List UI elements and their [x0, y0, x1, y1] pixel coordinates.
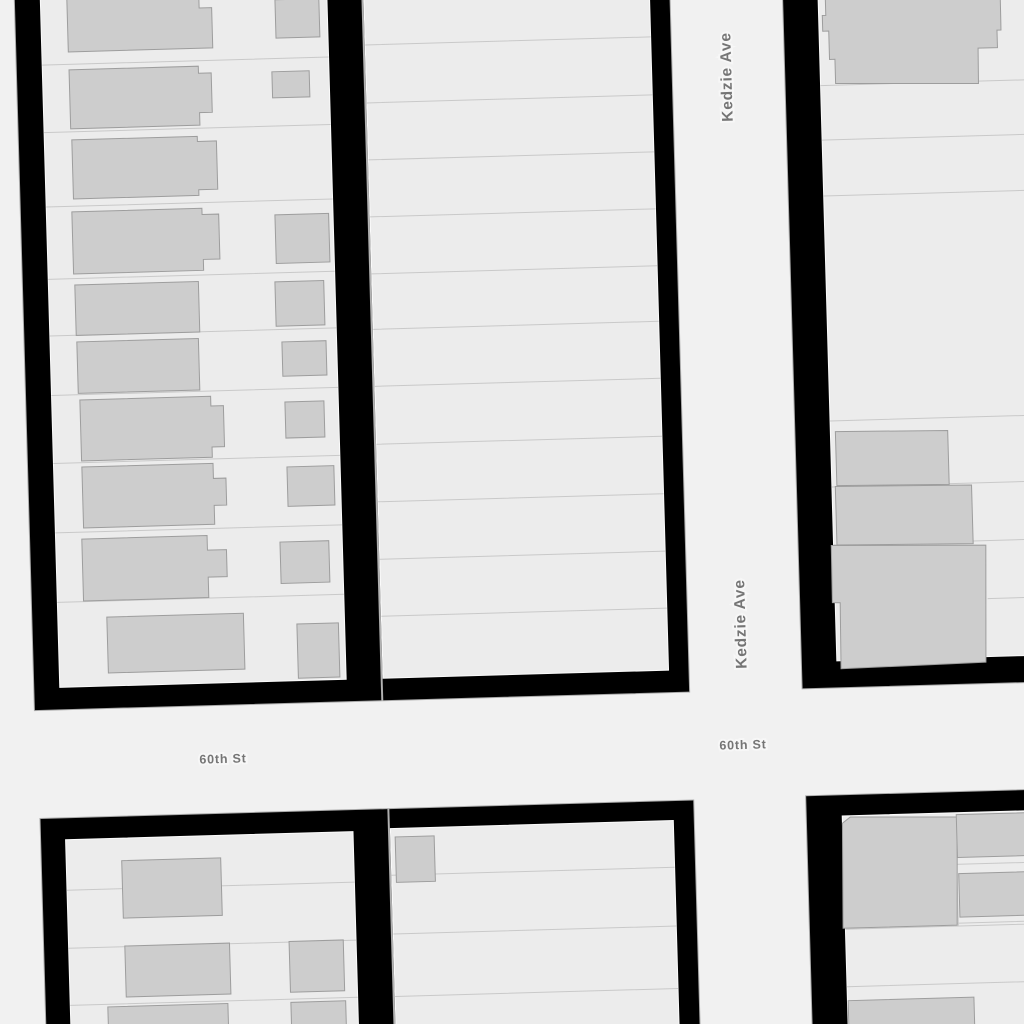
svg-text:60th St: 60th St — [719, 737, 767, 752]
svg-text:Kedzie Ave: Kedzie Ave — [731, 579, 751, 669]
svg-text:60th St: 60th St — [199, 751, 247, 766]
svg-text:Kedzie Ave: Kedzie Ave — [717, 32, 737, 122]
